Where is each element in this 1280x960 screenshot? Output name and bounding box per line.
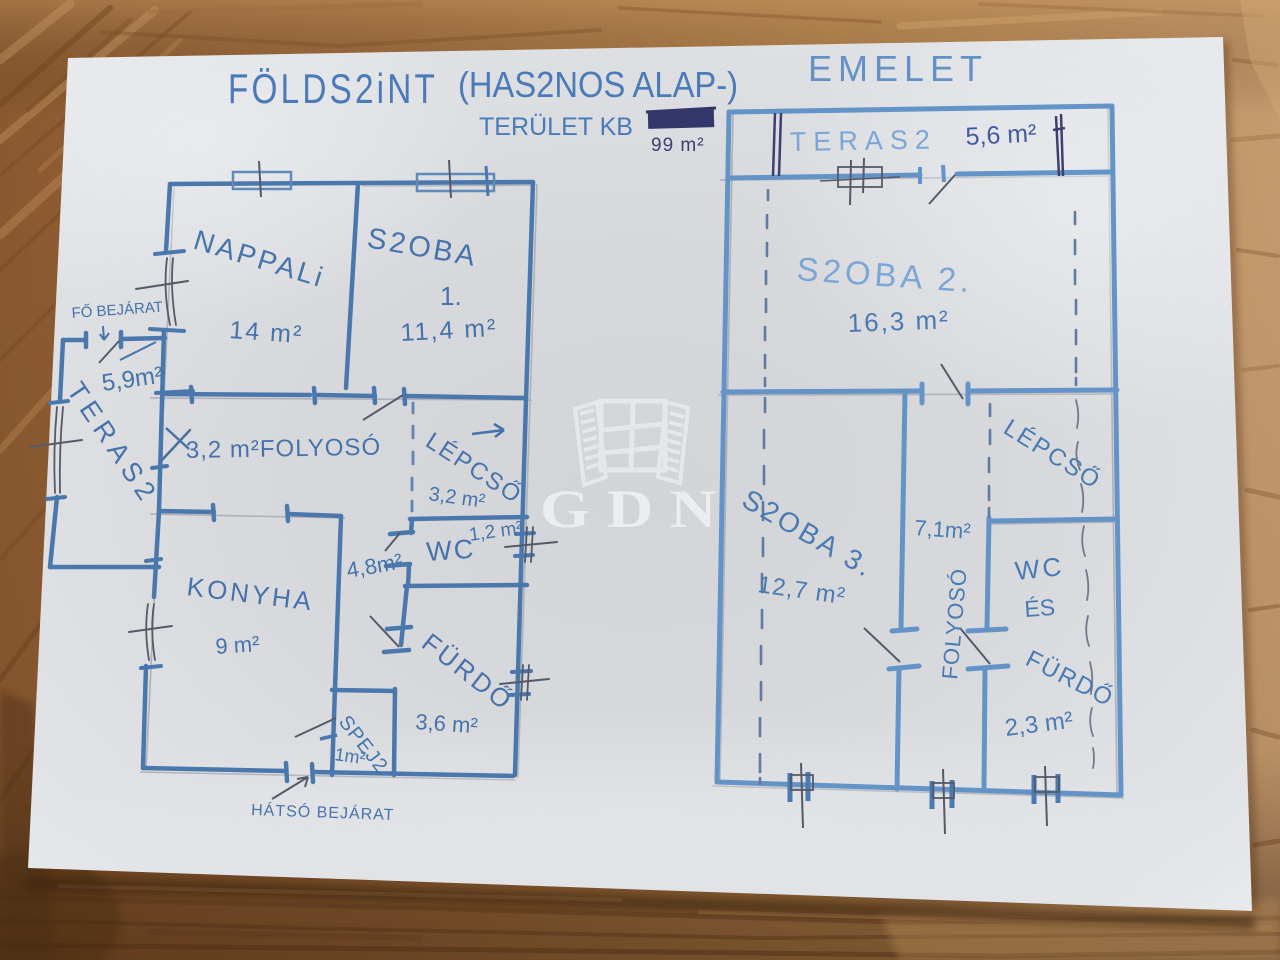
svg-text:WC: WC	[425, 534, 476, 567]
svg-text:16,3 m²: 16,3 m²	[847, 304, 950, 338]
svg-text:99 m²: 99 m²	[651, 135, 705, 156]
svg-text:3,6 m²: 3,6 m²	[415, 709, 479, 738]
svg-text:TERAS2: TERAS2	[790, 124, 938, 157]
svg-text:9 m²: 9 m²	[215, 631, 261, 659]
svg-text:1m²: 1m²	[333, 744, 366, 768]
svg-text:TERÜLET KB: TERÜLET KB	[479, 113, 633, 141]
svg-text:14 m²: 14 m²	[229, 316, 305, 349]
svg-text:3,2 m²FOLYOSÓ: 3,2 m²FOLYOSÓ	[186, 434, 382, 464]
svg-text:ÉS: ÉS	[1024, 594, 1056, 622]
svg-text:FÖLDS2iNT: FÖLDS2iNT	[228, 65, 438, 112]
svg-text:GDN: GDN	[540, 479, 733, 539]
svg-text:WC: WC	[1013, 551, 1065, 586]
svg-text:7,1m²: 7,1m²	[914, 515, 972, 544]
svg-text:1.: 1.	[440, 281, 462, 311]
svg-text:11,4 m²: 11,4 m²	[400, 314, 498, 347]
svg-text:EMELET: EMELET	[808, 48, 988, 89]
svg-text:(HAS2NOS ALAP-): (HAS2NOS ALAP-)	[458, 64, 738, 105]
svg-text:5,6 m²: 5,6 m²	[965, 119, 1037, 151]
